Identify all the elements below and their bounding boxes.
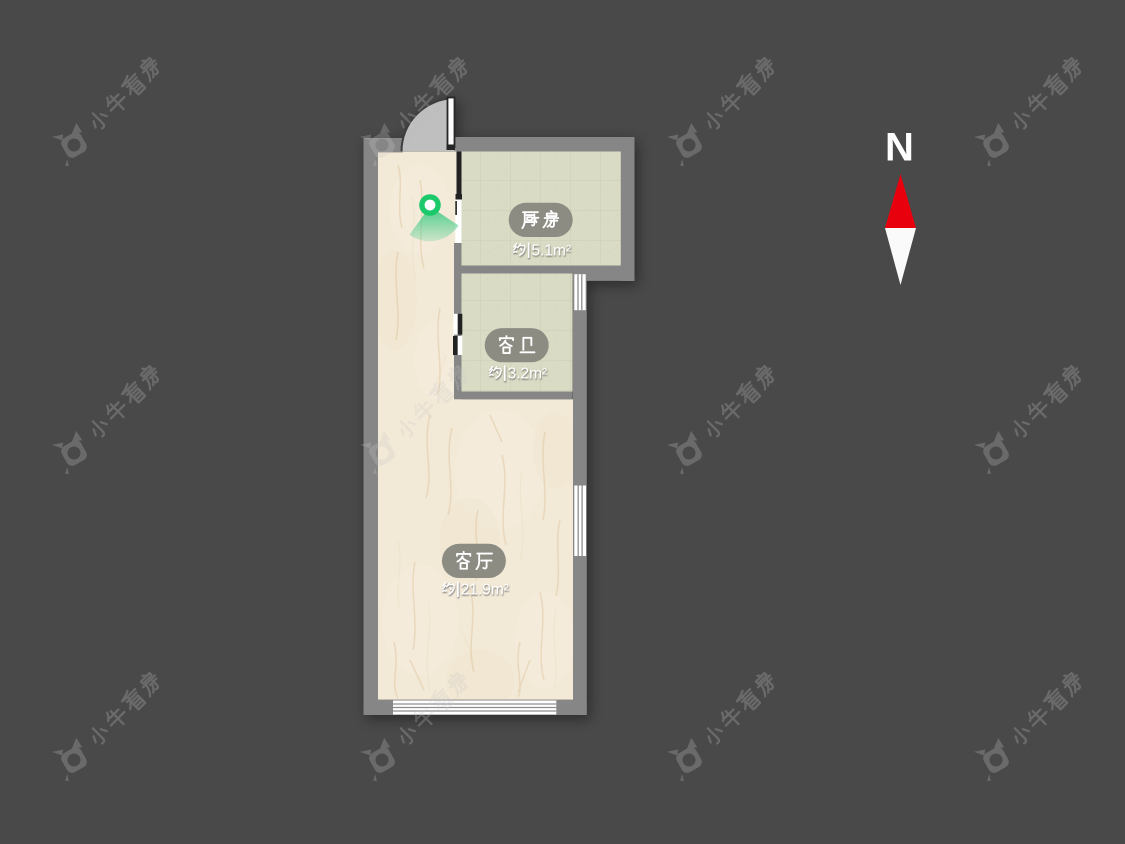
svg-text:N: N <box>885 126 914 170</box>
svg-text:21.9m²: 21.9m² <box>461 582 509 599</box>
svg-text:3.2m²: 3.2m² <box>508 366 548 383</box>
svg-text:5.1m²: 5.1m² <box>532 243 572 260</box>
